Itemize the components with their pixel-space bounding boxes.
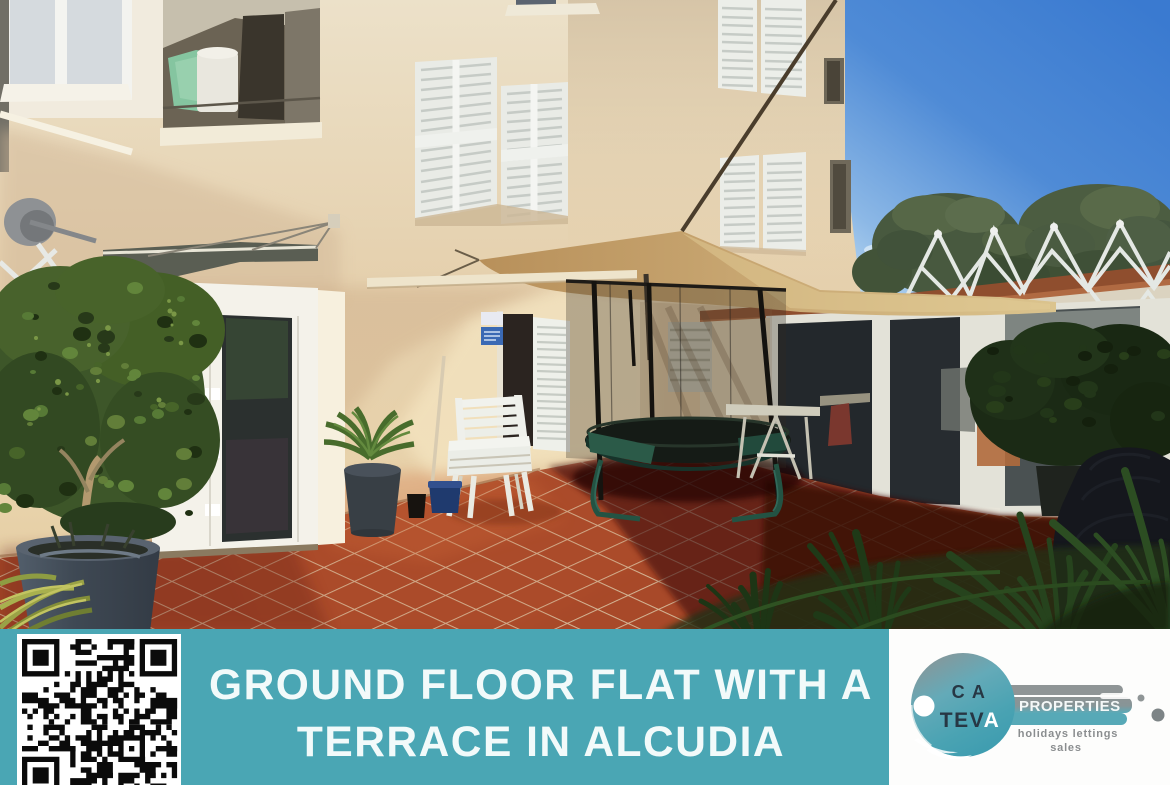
svg-text:GROUND FLOOR FLAT WITH A: GROUND FLOOR FLAT WITH A [209,662,873,709]
svg-text:holidays lettings: holidays lettings [1018,728,1118,740]
svg-text:sales: sales [1050,742,1082,754]
svg-text:C A: C A [952,682,987,702]
svg-text:TEVA: TEVA [940,709,1000,732]
svg-text:PROPERTIES: PROPERTIES [1019,698,1121,715]
svg-text:TERRACE IN ALCUDIA: TERRACE IN ALCUDIA [297,719,785,766]
